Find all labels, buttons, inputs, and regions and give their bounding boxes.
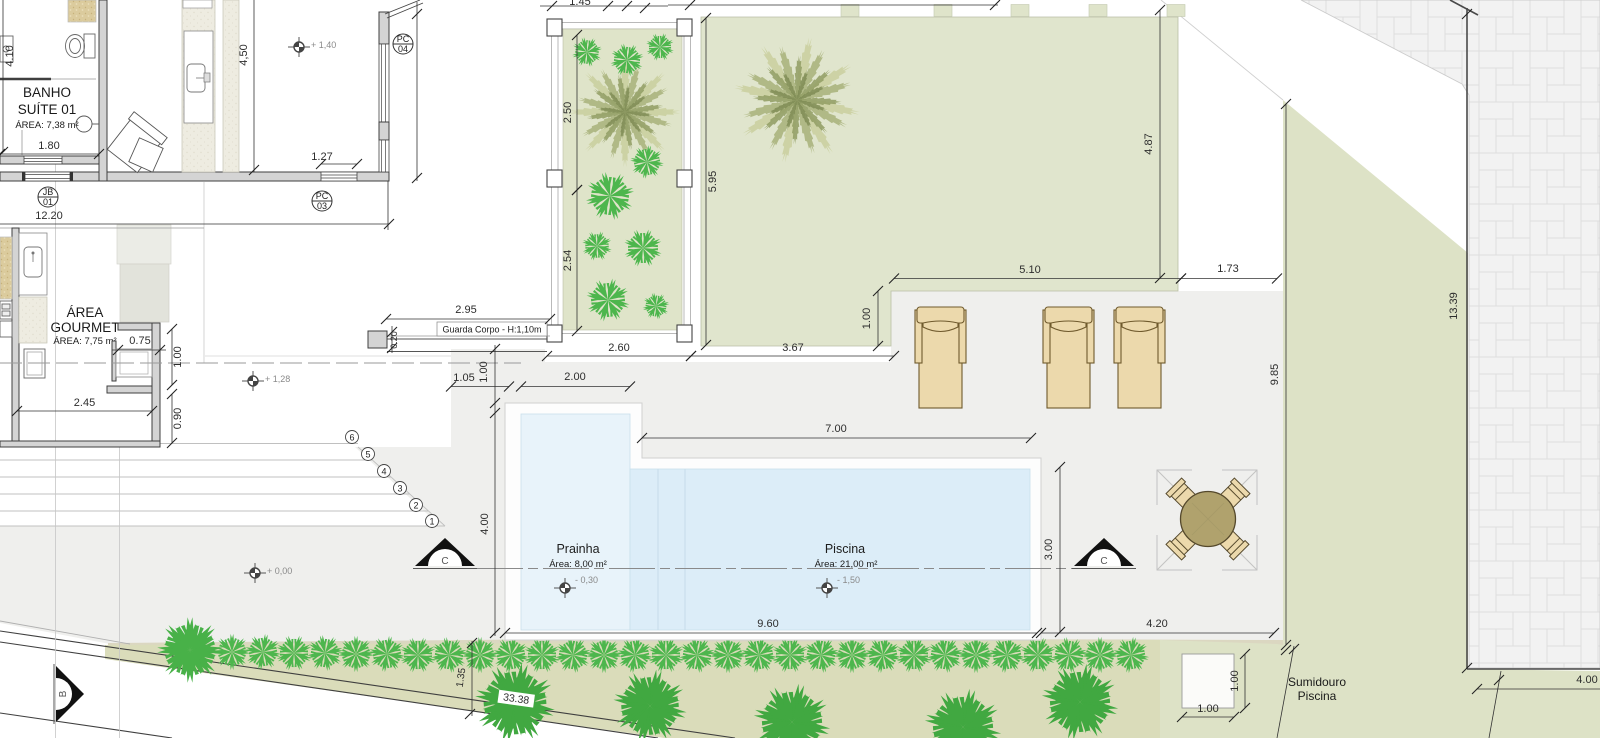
svg-text:1.27: 1.27 (311, 151, 332, 163)
svg-text:SUÍTE 01: SUÍTE 01 (18, 102, 77, 117)
svg-text:1.80: 1.80 (38, 140, 59, 152)
svg-text:2.45: 2.45 (74, 397, 95, 409)
svg-text:3.67: 3.67 (782, 342, 803, 354)
svg-text:1.00: 1.00 (1229, 670, 1241, 691)
svg-text:PC: PC (316, 191, 329, 201)
svg-text:GOURMET: GOURMET (51, 320, 120, 335)
svg-text:1.00: 1.00 (861, 308, 873, 329)
svg-text:04: 04 (398, 44, 408, 54)
svg-text:5.95: 5.95 (707, 171, 719, 192)
svg-text:+ 0,00: + 0,00 (267, 566, 292, 576)
svg-text:2.00: 2.00 (564, 371, 585, 383)
svg-text:12.20: 12.20 (35, 210, 63, 222)
svg-text:Prainha: Prainha (556, 542, 599, 556)
svg-text:1.73: 1.73 (1217, 263, 1238, 275)
svg-text:9.60: 9.60 (757, 618, 778, 630)
svg-text:1.45: 1.45 (569, 0, 590, 8)
svg-text:Sumidouro: Sumidouro (1288, 675, 1346, 689)
svg-text:- 1,50: - 1,50 (837, 575, 860, 585)
svg-text:0.90: 0.90 (172, 408, 184, 429)
svg-text:B: B (58, 690, 69, 697)
svg-text:5.10: 5.10 (1019, 264, 1040, 276)
svg-text:4: 4 (381, 467, 386, 477)
svg-text:01: 01 (43, 197, 53, 207)
svg-text:2.60: 2.60 (608, 342, 629, 354)
svg-text:1: 1 (429, 517, 434, 527)
svg-text:9.85: 9.85 (1269, 364, 1281, 385)
svg-text:0.20: 0.20 (389, 331, 399, 349)
svg-text:3: 3 (397, 484, 402, 494)
svg-text:4.00: 4.00 (479, 513, 491, 534)
svg-text:4.20: 4.20 (1146, 618, 1167, 630)
svg-text:PC: PC (397, 34, 410, 44)
svg-text:Piscina: Piscina (1298, 689, 1337, 703)
svg-text:7.00: 7.00 (825, 423, 846, 435)
svg-text:0.75: 0.75 (129, 335, 150, 347)
svg-text:JB: JB (43, 187, 54, 197)
svg-text:1.00: 1.00 (478, 361, 490, 382)
svg-text:+ 1,28: + 1,28 (265, 374, 290, 384)
svg-text:4.00: 4.00 (1576, 674, 1597, 686)
svg-text:1.05: 1.05 (453, 372, 474, 384)
svg-text:Piscina: Piscina (825, 542, 865, 556)
svg-text:3.00: 3.00 (1043, 539, 1055, 560)
svg-text:4,50: 4,50 (238, 44, 250, 65)
svg-text:+ 1,40: + 1,40 (311, 40, 336, 50)
svg-text:6: 6 (349, 433, 354, 443)
svg-text:Guarda Corpo - H:1,10m: Guarda Corpo - H:1,10m (442, 325, 541, 335)
svg-text:ÁREA: 7,75 m²: ÁREA: 7,75 m² (53, 336, 116, 347)
svg-text:2: 2 (413, 501, 418, 511)
svg-text:C: C (1100, 556, 1107, 567)
svg-text:4.10: 4.10 (4, 45, 16, 66)
svg-text:4.87: 4.87 (1143, 133, 1155, 154)
svg-text:1.00: 1.00 (1197, 703, 1218, 715)
svg-text:13.39: 13.39 (1448, 292, 1460, 320)
svg-text:2.50: 2.50 (562, 102, 574, 123)
svg-text:ÁREA: ÁREA (67, 305, 104, 320)
svg-text:03: 03 (317, 201, 327, 211)
svg-text:ÁREA: 7,38 m²: ÁREA: 7,38 m² (15, 120, 78, 131)
svg-text:2.95: 2.95 (455, 304, 476, 316)
svg-text:1.00: 1.00 (172, 346, 184, 367)
svg-text:5: 5 (365, 450, 370, 460)
svg-text:C: C (441, 556, 448, 567)
svg-text:- 0,30: - 0,30 (575, 575, 598, 585)
svg-text:2.54: 2.54 (562, 250, 574, 271)
svg-text:BANHO: BANHO (23, 85, 71, 100)
